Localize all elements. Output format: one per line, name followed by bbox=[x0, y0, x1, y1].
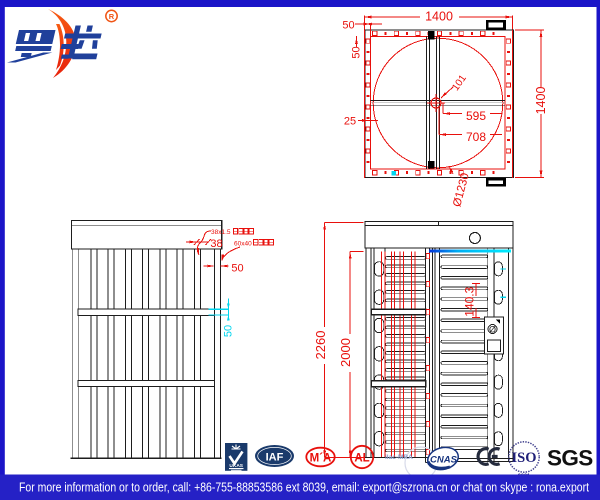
svg-text:AL: AL bbox=[354, 453, 369, 465]
svg-text:1400: 1400 bbox=[534, 87, 548, 115]
svg-text:ISO: ISO bbox=[512, 450, 537, 466]
svg-text:38: 38 bbox=[210, 238, 222, 250]
svg-text:CNAS: CNAS bbox=[430, 455, 458, 466]
svg-text:R: R bbox=[109, 12, 115, 21]
svg-text:38x1.5: 38x1.5 bbox=[211, 229, 231, 236]
svg-text:60x40: 60x40 bbox=[234, 240, 252, 247]
svg-text:50: 50 bbox=[222, 325, 234, 337]
svg-text:SGS: SGS bbox=[547, 446, 593, 471]
svg-text:Ø: Ø bbox=[489, 325, 496, 335]
svg-text:140.3: 140.3 bbox=[463, 286, 477, 316]
svg-text:For more information or to ord: For more information or to order, call: … bbox=[19, 481, 589, 495]
svg-text:50: 50 bbox=[350, 46, 362, 58]
svg-text:1400: 1400 bbox=[425, 10, 453, 24]
svg-text:2260: 2260 bbox=[313, 331, 328, 360]
svg-text:25: 25 bbox=[344, 116, 356, 128]
svg-text:50: 50 bbox=[342, 20, 354, 32]
svg-text:708: 708 bbox=[466, 130, 486, 144]
svg-text:595: 595 bbox=[466, 109, 486, 123]
svg-text:2000: 2000 bbox=[338, 338, 353, 367]
svg-text:50: 50 bbox=[231, 263, 243, 275]
svg-text:M´A: M´A bbox=[310, 453, 332, 465]
svg-text:ilac-MRA: ilac-MRA bbox=[385, 454, 413, 461]
svg-text:IAF: IAF bbox=[266, 452, 284, 464]
